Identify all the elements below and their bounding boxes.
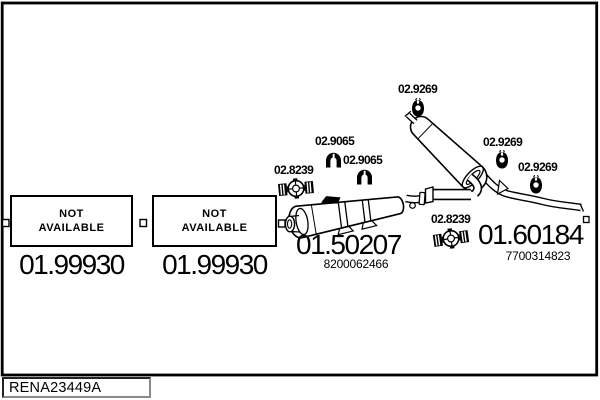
not-available-text: AVAILABLE xyxy=(182,221,248,235)
part-number-front-section[interactable]: 01.99930 xyxy=(8,251,135,279)
rubber-hanger-icon-middle xyxy=(496,150,508,168)
not-available-text: NOT xyxy=(59,207,84,221)
part-number-front-pipe[interactable]: 01.99930 xyxy=(150,251,279,279)
not-available-text: NOT xyxy=(202,207,227,221)
drawing-reference-code: RENA23449A xyxy=(4,380,101,396)
part-number-clamp-upper[interactable]: 02.9065 xyxy=(315,135,354,147)
pipe-clamp-icon-lower xyxy=(357,170,372,185)
drawing-reference-box: RENA23449A xyxy=(2,377,151,398)
rubber-hanger-icon-top xyxy=(412,98,424,116)
connector-square-4 xyxy=(584,217,590,223)
not-available-box-1: NOT AVAILABLE xyxy=(10,195,133,247)
exhaust-system-diagram: NOT AVAILABLE NOT AVAILABLE 01.99930 01.… xyxy=(0,0,600,400)
rubber-hanger-icon-right xyxy=(530,175,542,193)
part-number-middle-muffler[interactable]: 01.50207 xyxy=(296,231,401,259)
part-number-hanger-middle[interactable]: 02.9269 xyxy=(483,136,522,148)
part-number-rear-muffler[interactable]: 01.60184 xyxy=(478,221,583,249)
rubber-mount-icon-left xyxy=(278,177,315,200)
part-number-bracket-right[interactable]: 02.8239 xyxy=(431,213,470,225)
not-available-text: AVAILABLE xyxy=(39,221,105,235)
part-number-bracket-left[interactable]: 02.8239 xyxy=(274,164,313,176)
tail-pipe-drawing xyxy=(480,172,584,212)
part-number-hanger-right[interactable]: 02.9269 xyxy=(518,161,557,173)
not-available-box-2: NOT AVAILABLE xyxy=(152,195,277,247)
oem-number-rear-muffler: 7700314823 xyxy=(478,250,598,262)
connector-square-3 xyxy=(279,220,286,227)
oem-number-middle-muffler: 8200062466 xyxy=(296,258,416,270)
pipe-clamp-icon-upper xyxy=(326,153,341,168)
part-number-clamp-lower[interactable]: 02.9065 xyxy=(343,154,382,166)
rubber-mount-icon-right xyxy=(432,226,469,251)
part-number-hanger-top[interactable]: 02.9269 xyxy=(398,83,437,95)
connector-square-2 xyxy=(140,220,147,227)
connector-square-1 xyxy=(3,220,10,227)
